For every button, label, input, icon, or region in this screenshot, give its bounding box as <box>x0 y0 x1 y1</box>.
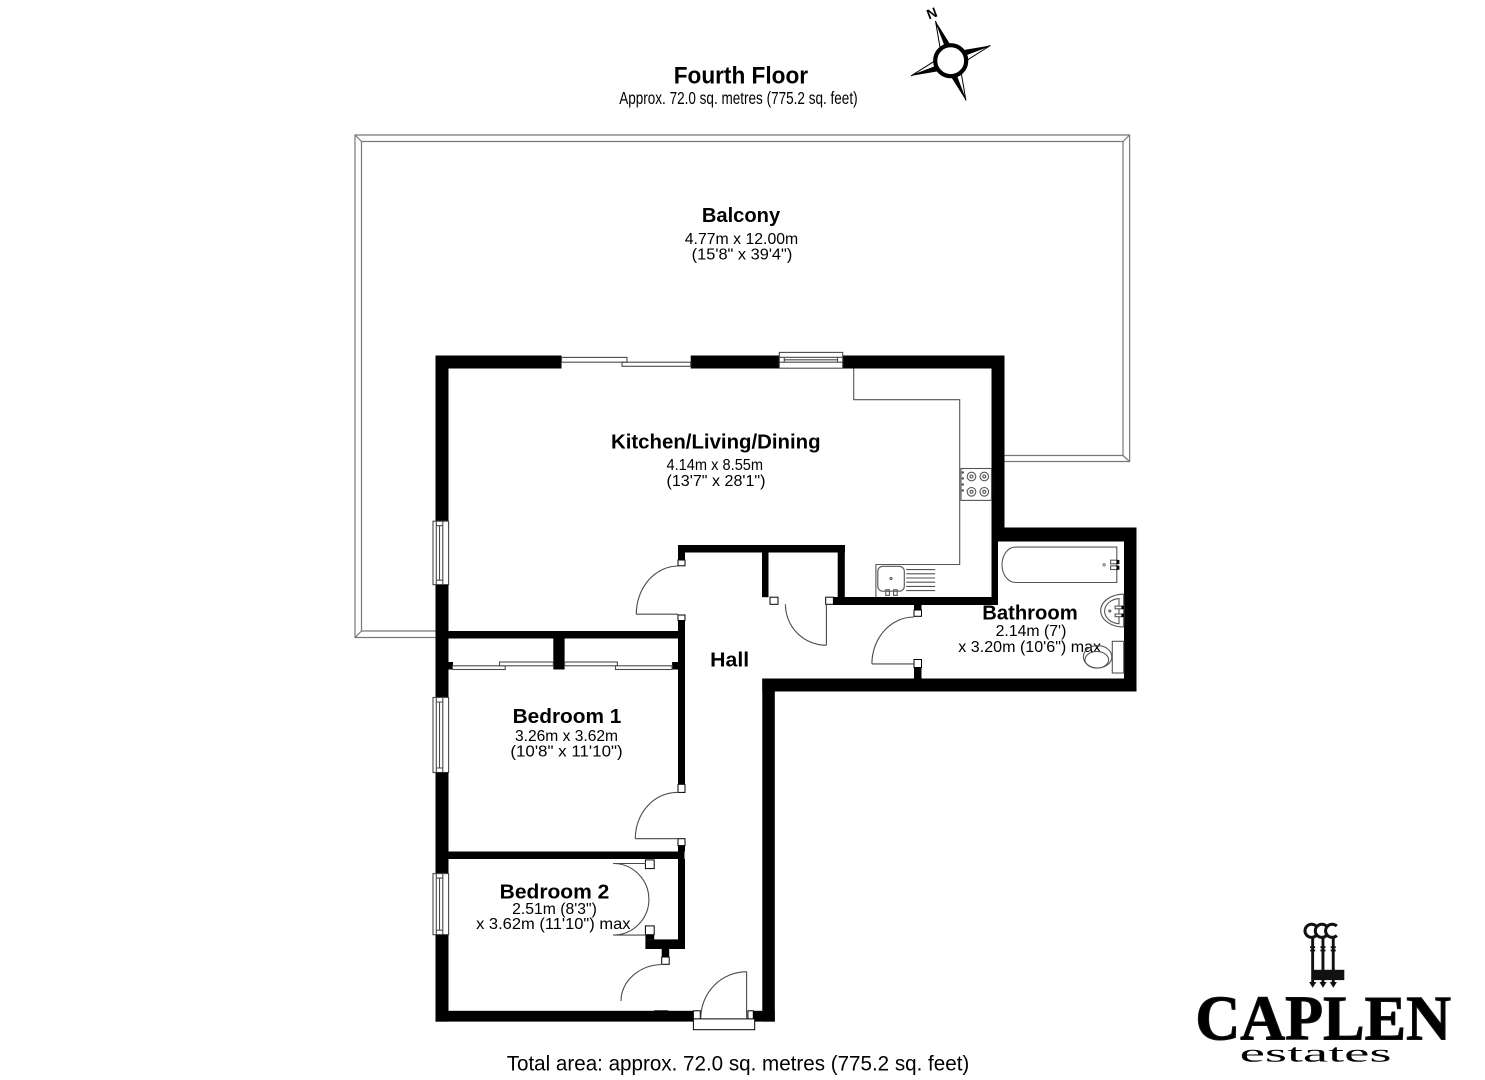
svg-text:Bedroom 2: Bedroom 2 <box>500 881 610 903</box>
svg-text:Approx. 72.0 sq. metres (775.2: Approx. 72.0 sq. metres (775.2 sq. feet) <box>619 88 857 108</box>
svg-text:x 3.62m (11'10") max: x 3.62m (11'10") max <box>476 916 630 933</box>
svg-text:2.14m (7'): 2.14m (7') <box>996 623 1067 640</box>
svg-text:(13'7" x 28'1"): (13'7" x 28'1") <box>667 473 766 490</box>
svg-text:estates: estates <box>1240 1041 1392 1068</box>
svg-text:3.26m x 3.62m: 3.26m x 3.62m <box>515 728 618 745</box>
svg-text:Bathroom: Bathroom <box>982 603 1078 625</box>
svg-text:Fourth Floor: Fourth Floor <box>674 62 808 89</box>
svg-text:Balcony: Balcony <box>702 205 781 227</box>
svg-text:Kitchen/Living/Dining: Kitchen/Living/Dining <box>611 432 821 454</box>
svg-text:4.14m x 8.55m: 4.14m x 8.55m <box>667 457 764 474</box>
svg-text:(15'8" x 39'4"): (15'8" x 39'4") <box>692 247 793 264</box>
svg-text:(10'8" x 11'10"): (10'8" x 11'10") <box>510 744 622 761</box>
svg-text:Bedroom 1: Bedroom 1 <box>513 706 622 728</box>
svg-text:Total area: approx. 72.0 sq. m: Total area: approx. 72.0 sq. metres (775… <box>507 1052 970 1075</box>
svg-text:x 3.20m (10'6") max: x 3.20m (10'6") max <box>958 639 1101 656</box>
svg-text:4.77m x 12.00m: 4.77m x 12.00m <box>685 231 799 248</box>
svg-text:Hall: Hall <box>710 650 749 672</box>
